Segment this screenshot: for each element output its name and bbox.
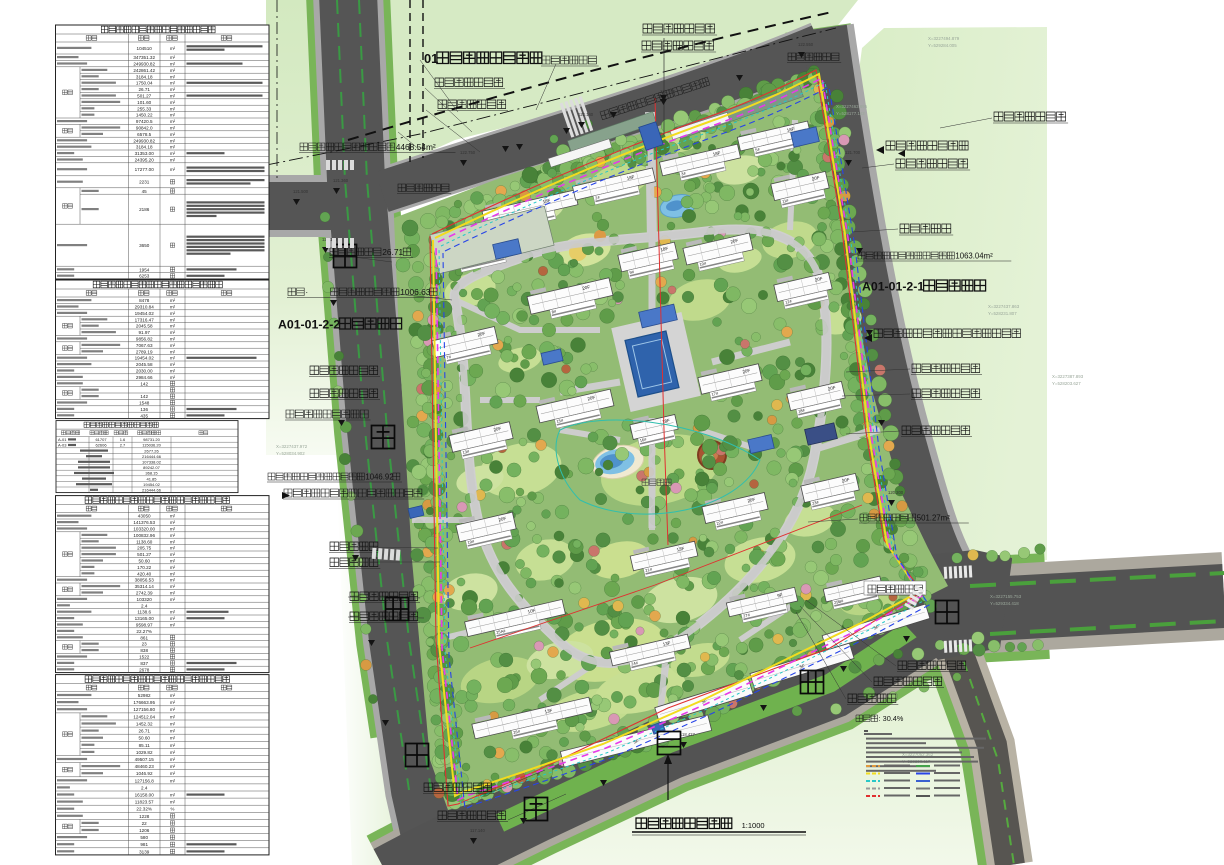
svg-text:580: 580 <box>140 835 148 840</box>
svg-text:23: 23 <box>142 642 148 647</box>
svg-text:X=3227463.895: X=3227463.895 <box>836 104 868 109</box>
svg-text:m²: m² <box>170 369 176 374</box>
svg-text:22.32%: 22.32% <box>136 807 152 812</box>
svg-text:m²: m² <box>170 714 176 719</box>
svg-text:26.71: 26.71 <box>138 729 150 734</box>
svg-text:01: 01 <box>424 51 438 66</box>
svg-text:368.15: 368.15 <box>145 471 158 476</box>
svg-text:501.27m²: 501.27m² <box>917 514 950 523</box>
svg-text:11823.57: 11823.57 <box>135 800 154 805</box>
svg-text:1954: 1954 <box>139 267 150 272</box>
svg-text:255.33: 255.33 <box>137 106 151 111</box>
svg-text:1450.22: 1450.22 <box>136 113 153 118</box>
svg-text:m²: m² <box>170 100 176 105</box>
svg-text:122.550: 122.550 <box>798 42 814 47</box>
svg-text:m²: m² <box>170 106 176 111</box>
svg-text:90842.0: 90842.0 <box>136 126 153 131</box>
svg-text:1006.63: 1006.63 <box>400 287 431 297</box>
svg-text:m²: m² <box>170 167 176 172</box>
svg-text:Y=528034.902: Y=528034.902 <box>276 451 305 456</box>
svg-text:24395.20: 24395.20 <box>135 158 155 163</box>
svg-text:m²: m² <box>170 158 176 163</box>
svg-text:X=3227437.863: X=3227437.863 <box>988 304 1020 309</box>
svg-text:19454.02: 19454.02 <box>143 482 160 487</box>
svg-text:m²: m² <box>170 736 176 741</box>
svg-text:242861.42: 242861.42 <box>133 68 155 73</box>
svg-text:m²: m² <box>170 343 176 348</box>
svg-text:101.60: 101.60 <box>137 100 151 105</box>
svg-text:118.427: 118.427 <box>680 732 695 737</box>
svg-text:m²: m² <box>170 700 176 705</box>
svg-text:38056.53: 38056.53 <box>135 578 155 583</box>
svg-text:41.85: 41.85 <box>146 476 157 481</box>
svg-text:m²: m² <box>170 317 176 322</box>
svg-text:m²: m² <box>170 591 176 596</box>
svg-text:176663.95: 176663.95 <box>133 700 155 705</box>
svg-text:m²: m² <box>170 126 176 131</box>
svg-text:m²: m² <box>170 610 176 615</box>
svg-text:4468.54m²: 4468.54m² <box>396 142 436 152</box>
svg-text:m²: m² <box>170 68 176 73</box>
svg-text:2.4: 2.4 <box>141 603 148 608</box>
svg-text:1138.60: 1138.60 <box>136 539 153 544</box>
svg-text:m²: m² <box>170 750 176 755</box>
svg-text:17277.00: 17277.00 <box>135 167 155 172</box>
svg-text:m²: m² <box>170 132 176 137</box>
svg-text:26.71: 26.71 <box>138 87 150 92</box>
svg-text:501.27: 501.27 <box>137 552 151 557</box>
svg-text:2742.39: 2742.39 <box>136 591 153 596</box>
svg-text:X=3227494.879: X=3227494.879 <box>928 36 960 41</box>
svg-text:19454.02: 19454.02 <box>135 311 155 316</box>
svg-text:m²: m² <box>170 375 176 380</box>
svg-text:3139: 3139 <box>139 849 150 854</box>
svg-text:347351.32: 347351.32 <box>133 55 155 60</box>
svg-text:13165.00: 13165.00 <box>135 616 155 621</box>
svg-text:X=3227387.893: X=3227387.893 <box>1052 374 1084 379</box>
svg-text:50.60: 50.60 <box>138 559 150 564</box>
svg-text:: 30.4%: : 30.4% <box>879 714 904 723</box>
svg-text:435: 435 <box>140 413 148 418</box>
svg-text:48460.23: 48460.23 <box>135 764 155 769</box>
svg-text:X=3227155.753: X=3227155.753 <box>990 594 1022 599</box>
svg-text:1548: 1548 <box>139 401 150 406</box>
svg-text:m²: m² <box>170 311 176 316</box>
svg-text:m²: m² <box>170 533 176 538</box>
svg-text:2789.19: 2789.19 <box>136 349 153 354</box>
svg-text:m²: m² <box>170 330 176 335</box>
svg-text:6253: 6253 <box>139 274 150 279</box>
svg-text:1750.04: 1750.04 <box>136 81 153 86</box>
svg-text:m²: m² <box>170 616 176 621</box>
svg-text:1046.92: 1046.92 <box>136 771 153 776</box>
svg-text:m²: m² <box>170 552 176 557</box>
svg-text:9598.97: 9598.97 <box>136 623 153 628</box>
svg-text:205.75: 205.75 <box>137 546 151 551</box>
svg-text:m²: m² <box>170 565 176 570</box>
svg-text:122.700: 122.700 <box>660 89 676 94</box>
svg-text:m²: m² <box>170 527 176 532</box>
svg-text:49507.15: 49507.15 <box>135 757 155 762</box>
svg-text:m²: m² <box>170 578 176 583</box>
svg-text:m²: m² <box>170 546 176 551</box>
svg-text:1228: 1228 <box>139 814 150 819</box>
svg-text:170.22: 170.22 <box>137 565 151 570</box>
svg-text:141376.53: 141376.53 <box>133 520 155 525</box>
svg-text:m²: m² <box>170 539 176 544</box>
svg-text:Y=529334.418: Y=529334.418 <box>990 601 1019 606</box>
svg-text:3184.18: 3184.18 <box>136 145 153 150</box>
svg-text:2231: 2231 <box>139 180 150 185</box>
svg-text:103320.00: 103320.00 <box>133 527 155 532</box>
svg-text:m²: m² <box>170 356 176 361</box>
svg-text:m²: m² <box>170 81 176 86</box>
svg-text:89242.07: 89242.07 <box>143 465 160 470</box>
svg-text:3650: 3650 <box>139 243 150 248</box>
svg-text:1.6: 1.6 <box>120 437 126 442</box>
svg-text:122.750: 122.750 <box>460 150 476 155</box>
svg-text:m²: m² <box>170 46 176 51</box>
svg-text:m²: m² <box>170 94 176 99</box>
svg-text:35314.14: 35314.14 <box>135 584 155 589</box>
svg-text:9856.82: 9856.82 <box>136 337 153 342</box>
svg-text:m²: m² <box>170 87 176 92</box>
svg-text:29310.84: 29310.84 <box>135 305 155 310</box>
svg-text:A-01: A-01 <box>58 437 67 442</box>
svg-text:861: 861 <box>140 635 148 640</box>
svg-text:45: 45 <box>142 189 148 194</box>
svg-text:104510: 104510 <box>137 46 153 51</box>
svg-text:m²: m² <box>170 324 176 329</box>
svg-text:1452.32: 1452.32 <box>136 722 153 727</box>
svg-text:249930.82: 249930.82 <box>133 62 155 67</box>
svg-text:98731.20: 98731.20 <box>143 437 160 442</box>
svg-text:m²: m² <box>170 571 176 576</box>
svg-text:A01-01-2-1: A01-01-2-1 <box>862 279 924 293</box>
svg-text:m²: m² <box>170 298 176 303</box>
svg-text:501.27: 501.27 <box>137 94 151 99</box>
svg-text:117.140: 117.140 <box>470 828 485 833</box>
svg-text:%: % <box>171 807 175 812</box>
svg-text:97420.5: 97420.5 <box>136 119 153 124</box>
svg-text:420.40: 420.40 <box>137 571 151 576</box>
svg-text:16158.00: 16158.00 <box>135 793 155 798</box>
svg-text:m²: m² <box>170 514 176 519</box>
svg-text:m²: m² <box>170 764 176 769</box>
svg-text:2045.58: 2045.58 <box>136 362 153 367</box>
svg-text:7067.63: 7067.63 <box>136 343 153 348</box>
svg-text:1:1000: 1:1000 <box>742 821 765 830</box>
svg-text:837: 837 <box>140 661 148 666</box>
svg-text:2030.00: 2030.00 <box>136 369 153 374</box>
svg-text:m²: m² <box>170 559 176 564</box>
svg-text:1206: 1206 <box>139 828 150 833</box>
svg-text:m²: m² <box>170 707 176 712</box>
svg-text:2678: 2678 <box>139 667 150 672</box>
svg-text:120.200: 120.200 <box>888 490 904 495</box>
svg-text:2045.58: 2045.58 <box>136 324 153 329</box>
svg-text:1046.92: 1046.92 <box>365 473 393 482</box>
svg-text:838: 838 <box>140 648 148 653</box>
svg-text:122.140: 122.140 <box>578 112 594 117</box>
svg-text:136: 136 <box>140 407 148 412</box>
svg-text:m²: m² <box>170 778 176 783</box>
svg-text:m²: m² <box>170 145 176 150</box>
svg-text:1029.82: 1029.82 <box>136 750 153 755</box>
svg-text:52982: 52982 <box>138 693 151 698</box>
svg-text:142: 142 <box>140 381 148 386</box>
svg-text:8478: 8478 <box>139 298 150 303</box>
svg-text:Y=529284.005: Y=529284.005 <box>928 43 957 48</box>
svg-text:m²: m² <box>170 337 176 342</box>
svg-text:121.500: 121.500 <box>293 189 309 194</box>
svg-text:m²: m² <box>170 800 176 805</box>
svg-text:121.360: 121.360 <box>333 178 349 183</box>
svg-text:62606: 62606 <box>95 443 107 448</box>
svg-text:m²: m² <box>170 729 176 734</box>
svg-text:216444.66: 216444.66 <box>142 488 162 493</box>
svg-text:m²: m² <box>170 55 176 60</box>
svg-text:m²: m² <box>170 757 176 762</box>
svg-text:127156.80: 127156.80 <box>133 707 155 712</box>
svg-text:m²: m² <box>170 597 176 602</box>
svg-text:121.700: 121.700 <box>845 150 861 155</box>
svg-text:m²: m² <box>170 623 176 628</box>
svg-text:m²: m² <box>170 349 176 354</box>
svg-text:249930.82: 249930.82 <box>133 138 155 143</box>
svg-text:m²: m² <box>170 520 176 525</box>
svg-text:A-03: A-03 <box>58 443 67 448</box>
svg-text:2.7: 2.7 <box>120 443 126 448</box>
svg-text:50.60: 50.60 <box>138 736 150 741</box>
svg-text:2984.66: 2984.66 <box>136 375 153 380</box>
svg-text:2.4: 2.4 <box>141 785 148 790</box>
svg-text:43050: 43050 <box>138 514 151 519</box>
svg-text:981: 981 <box>140 842 148 847</box>
svg-text:216444.66: 216444.66 <box>142 454 162 459</box>
svg-text:17316.47: 17316.47 <box>135 317 155 322</box>
svg-text:127156.8: 127156.8 <box>135 778 155 783</box>
svg-text:124512.04: 124512.04 <box>133 714 155 719</box>
svg-text:m²: m² <box>170 793 176 798</box>
svg-text:m²: m² <box>170 138 176 143</box>
svg-text:m²: m² <box>170 62 176 67</box>
svg-text:m²: m² <box>170 119 176 124</box>
svg-text:3184.18: 3184.18 <box>136 74 153 79</box>
svg-text:2186: 2186 <box>139 207 150 212</box>
svg-text:100832.96: 100832.96 <box>133 533 155 538</box>
svg-text:26.71: 26.71 <box>382 247 403 257</box>
svg-text:m²: m² <box>170 743 176 748</box>
svg-text:X=3227437.972: X=3227437.972 <box>276 444 308 449</box>
svg-text:m²: m² <box>170 722 176 727</box>
svg-text:·: · <box>305 287 308 297</box>
svg-text:Y=528203.627: Y=528203.627 <box>1052 381 1081 386</box>
svg-text:m²: m² <box>170 771 176 776</box>
svg-text:61707: 61707 <box>95 437 107 442</box>
svg-text:Y=528231.807: Y=528231.807 <box>988 311 1017 316</box>
svg-text:m²: m² <box>170 74 176 79</box>
svg-text:m²: m² <box>170 693 176 698</box>
svg-text:m²: m² <box>170 584 176 589</box>
svg-text:2677.26: 2677.26 <box>144 448 159 453</box>
svg-text:31353.00: 31353.00 <box>135 151 155 156</box>
svg-text:m²: m² <box>170 113 176 118</box>
svg-text:107338.02: 107338.02 <box>142 460 162 465</box>
svg-text:103320: 103320 <box>137 597 153 602</box>
svg-text:142: 142 <box>140 394 148 399</box>
svg-text:m²: m² <box>170 305 176 310</box>
svg-text:m²: m² <box>170 362 176 367</box>
svg-text:1522: 1522 <box>139 655 150 660</box>
svg-text:22: 22 <box>142 821 148 826</box>
svg-text:115036.20: 115036.20 <box>142 443 161 448</box>
svg-text:1138.6: 1138.6 <box>137 610 151 615</box>
svg-text:22.27%: 22.27% <box>136 629 152 634</box>
svg-text:1063.04m²: 1063.04m² <box>955 252 993 261</box>
svg-text:Y=528177.132: Y=528177.132 <box>836 111 865 116</box>
svg-text:A01-01-2-2: A01-01-2-2 <box>278 317 340 331</box>
svg-text:85.11: 85.11 <box>139 743 151 748</box>
svg-text:19454.02: 19454.02 <box>135 356 155 361</box>
svg-text:6578.5: 6578.5 <box>137 132 151 137</box>
svg-text:m²: m² <box>170 151 176 156</box>
svg-text:91.97: 91.97 <box>138 330 150 335</box>
